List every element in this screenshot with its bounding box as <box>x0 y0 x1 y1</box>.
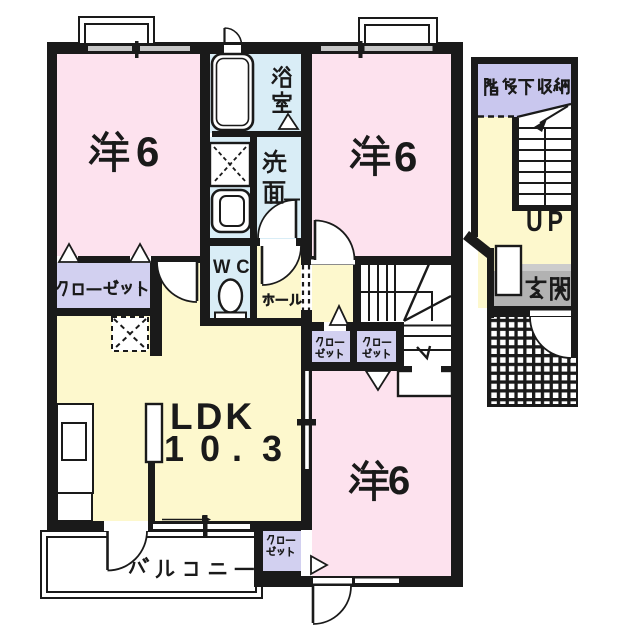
svg-text:.: . <box>232 428 242 469</box>
svg-text:6: 6 <box>136 128 159 175</box>
svg-text:6: 6 <box>388 459 410 503</box>
svg-text:WC: WC <box>213 256 255 277</box>
svg-text:UP: UP <box>526 204 568 237</box>
svg-text:1: 1 <box>164 428 184 469</box>
svg-text:0: 0 <box>200 428 220 469</box>
svg-text:3: 3 <box>262 428 282 469</box>
svg-text:6: 6 <box>394 133 417 180</box>
